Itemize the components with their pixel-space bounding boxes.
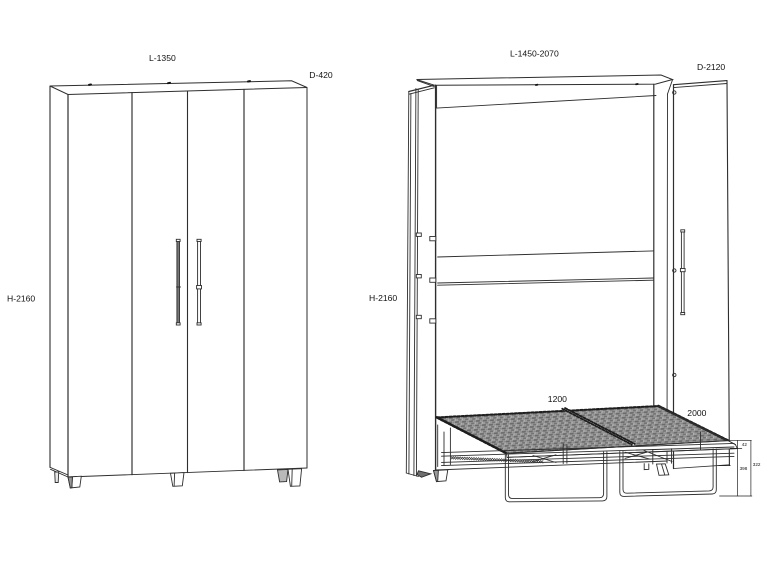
- svg-text:D-2120: D-2120: [697, 62, 725, 72]
- svg-text:L-1350: L-1350: [149, 53, 176, 63]
- svg-text:H-2160: H-2160: [369, 293, 397, 303]
- svg-text:L-1450-2070: L-1450-2070: [510, 49, 559, 59]
- svg-text:D-420: D-420: [309, 70, 333, 80]
- svg-text:42: 42: [742, 442, 748, 447]
- svg-text:H-2160: H-2160: [7, 294, 35, 304]
- svg-text:398: 398: [740, 466, 748, 471]
- svg-text:322: 322: [753, 462, 761, 467]
- svg-text:2000: 2000: [687, 408, 706, 418]
- svg-text:1200: 1200: [548, 394, 567, 404]
